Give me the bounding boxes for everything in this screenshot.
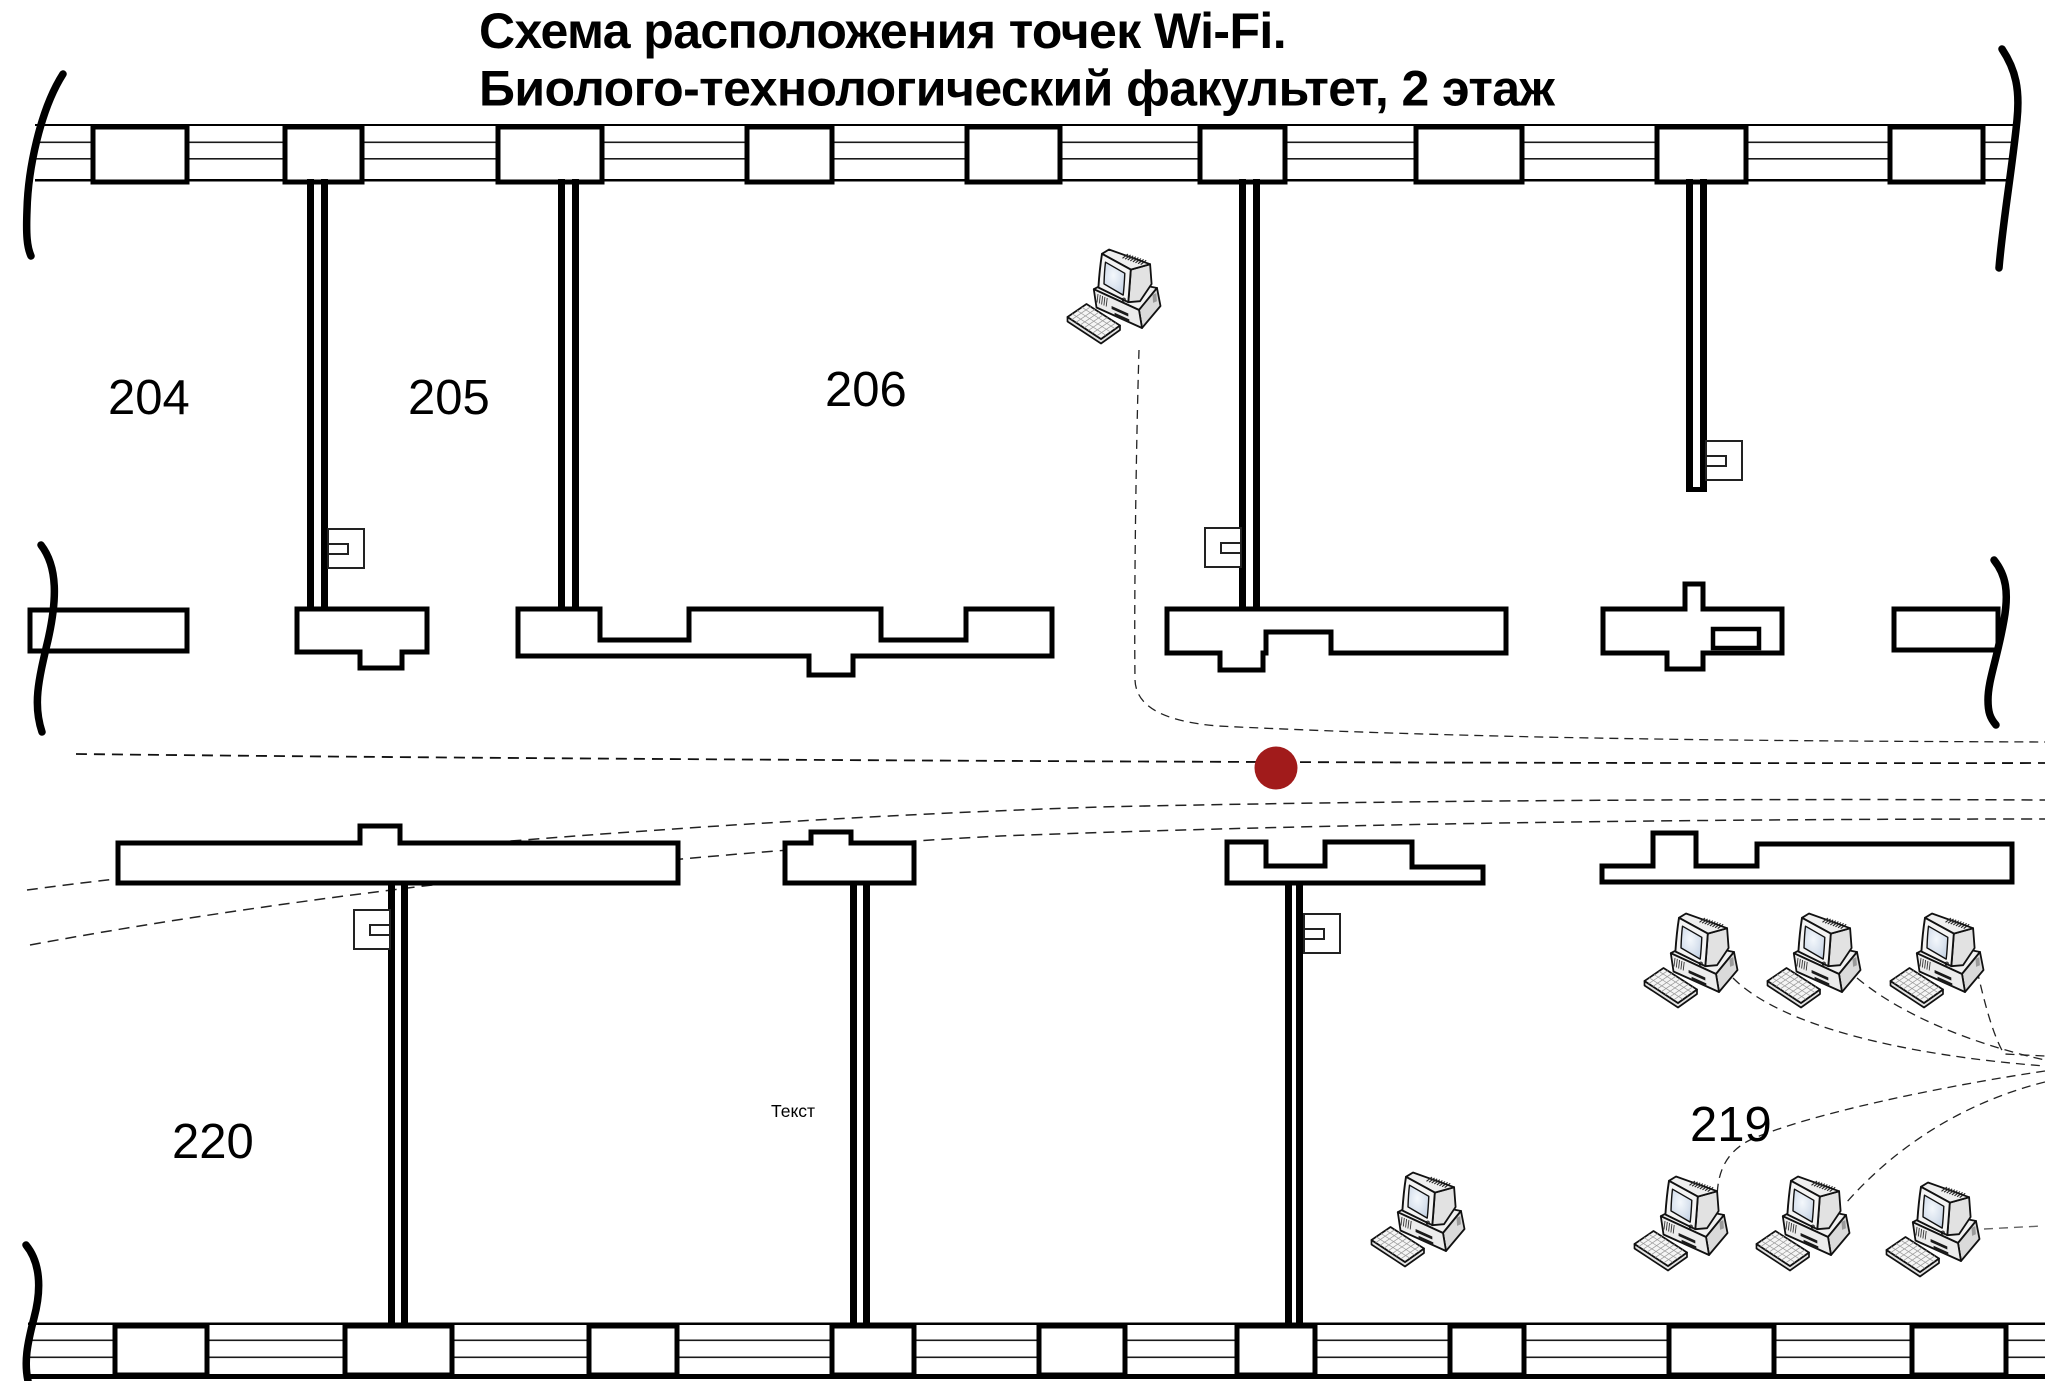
svg-text:Биолого-технологический факуль: Биолого-технологический факультет, 2 эта… xyxy=(479,61,1555,117)
svg-text:204: 204 xyxy=(108,371,190,425)
svg-text:219: 219 xyxy=(1690,1098,1772,1152)
svg-text:220: 220 xyxy=(172,1115,254,1169)
svg-text:Текст: Текст xyxy=(771,1101,815,1121)
svg-text:205: 205 xyxy=(408,371,490,425)
svg-text:Схема расположения точек Wi-Fi: Схема расположения точек Wi-Fi. xyxy=(479,3,1286,59)
svg-text:206: 206 xyxy=(825,363,907,417)
